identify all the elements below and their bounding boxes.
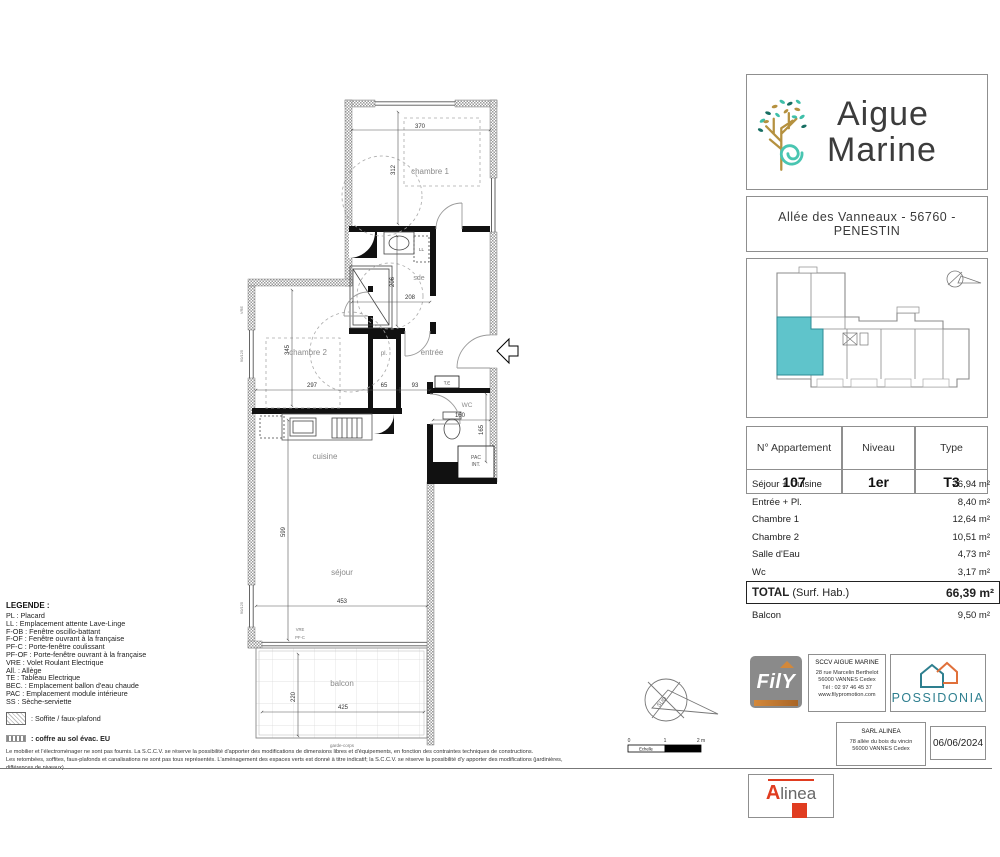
- area-label: Salle d'Eau: [752, 549, 800, 560]
- dim-balcon-w: 425: [338, 705, 349, 711]
- total-value: 66,39 m²: [946, 586, 994, 600]
- spiral-mark: [781, 146, 802, 164]
- room-label-chambre2: chambre 2: [289, 348, 327, 357]
- dim-chambre1-w: 370: [415, 124, 426, 130]
- siteplan-box: [746, 258, 988, 418]
- dim-wc-h: 165: [479, 424, 485, 435]
- plan-sheet: 370 312 206 208 345 297 65 93 160 165 59…: [0, 0, 1000, 857]
- label-vre-left: VRE: [239, 306, 244, 315]
- alinea-square: [792, 803, 807, 818]
- area-label: Entrée + Pl.: [752, 497, 802, 508]
- alinea-address-1: 78 allée du bois du vincin: [837, 739, 925, 747]
- label-te: T.E: [444, 381, 451, 386]
- total-label: TOTAL (Surf. Hab.): [752, 587, 849, 599]
- apt-col1-header: N° Appartement: [746, 426, 842, 470]
- brand-logo-box: Aigue Marine: [746, 74, 988, 190]
- area-row: Chambre 2 10,51 m²: [748, 529, 994, 546]
- scale-tick-1: 1: [664, 738, 667, 744]
- developer-phone: Tél : 02 97 46 45 37: [809, 685, 885, 693]
- area-label: Séjour + Cuisine: [752, 479, 822, 490]
- developer-address-2: 56000 VANNES Cedex: [809, 677, 885, 685]
- dim-wc-w: 160: [455, 413, 466, 419]
- legend-coffre-label: : coffre au sol évac. EU: [31, 734, 110, 743]
- label-vre-bottom: VRE: [296, 627, 305, 632]
- balcony: [256, 648, 427, 738]
- dim-sde-w: 208: [405, 295, 416, 301]
- area-row: Séjour + Cuisine 26,94 m²: [748, 476, 994, 493]
- dim-chambre1-h: 312: [391, 164, 397, 175]
- scale-label: Echelle: [639, 747, 653, 752]
- area-row: Entrée + Pl. 8,40 m²: [748, 494, 994, 511]
- dim-chambre2-w: 297: [307, 383, 318, 389]
- page-frame-bottom: [0, 768, 992, 769]
- dim-hall-w: 93: [412, 383, 419, 389]
- possidonia-name: POSSIDONIA: [891, 691, 985, 705]
- dim-sejour-h: 599: [281, 526, 287, 537]
- possidonia-logo-box: POSSIDONIA: [890, 654, 986, 712]
- apt-col3-header: Type: [915, 426, 988, 470]
- alinea-logo-text: Alinea: [749, 782, 833, 805]
- brand-name-line1: Aigue: [837, 96, 937, 132]
- area-label: Wc: [752, 567, 766, 578]
- legend: LEGENDE : PL : Placard LL : Emplacement …: [6, 601, 242, 743]
- apartment-table: N° Appartement Niveau Type 107 1er T3: [746, 426, 988, 470]
- area-value: 12,64 m²: [953, 514, 991, 525]
- room-label-entree: entrée: [421, 348, 444, 357]
- developer-company: SCCV AIGUE MARINE: [809, 659, 885, 667]
- alinea-rule: [768, 779, 814, 781]
- dim-balcon-h: 220: [291, 691, 297, 702]
- compass-icon: SUD: [645, 679, 718, 721]
- scale-tick-0: 0: [628, 738, 631, 744]
- legend-title: LEGENDE :: [6, 601, 242, 610]
- alinea-logo-box: Alinea: [748, 774, 834, 818]
- coffre-swatch: [6, 735, 26, 742]
- room-label-placard: pl.: [381, 350, 388, 357]
- disclaimer-line-1: Le mobilier et l'électroménager ne sont …: [6, 748, 566, 756]
- developer-info: SCCV AIGUE MARINE 28 rue Marcelin Berthe…: [808, 654, 886, 712]
- scale-tick-2: 2 m: [697, 738, 705, 744]
- label-ll: LL: [419, 247, 425, 252]
- label-pac-2: INT.: [472, 462, 481, 468]
- area-value: 26,94 m²: [953, 479, 991, 490]
- balcony-row: Balcon 9,50 m²: [748, 607, 994, 624]
- room-label-balcon: balcon: [330, 679, 354, 688]
- compass-label: SUD: [656, 696, 668, 709]
- project-address: Allée des Vanneaux - 56760 - PENESTIN: [747, 210, 987, 238]
- area-value: 3,17 m²: [958, 567, 990, 578]
- brand-name: Aigue Marine: [827, 96, 937, 168]
- label-pac-1: PAC: [471, 455, 481, 461]
- balcony-label: Balcon: [752, 610, 781, 621]
- room-label-sde: sde: [413, 275, 424, 282]
- disclaimer-line-2: Les retombées, soffites, faux-plafonds e…: [6, 756, 566, 772]
- date-box: 06/06/2024: [930, 726, 986, 760]
- fily-logo: FilY: [750, 656, 802, 708]
- dim-sejour-w: 453: [337, 599, 348, 605]
- dim-placard-w: 65: [381, 383, 388, 389]
- siteplan-compass-icon: [947, 271, 981, 287]
- developer-address-1: 28 rue Marcelin Berthelot: [809, 670, 885, 678]
- area-label: Chambre 2: [752, 532, 799, 543]
- address-box: Allée des Vanneaux - 56760 - PENESTIN: [746, 196, 988, 252]
- developer-website[interactable]: www.filypromotion.com: [809, 692, 885, 700]
- fixtures: [258, 232, 494, 686]
- brand-tree-icon: [753, 90, 819, 174]
- room-label-sejour: séjour: [331, 568, 353, 577]
- alinea-company: SARL ALINEA: [837, 728, 925, 736]
- fily-banner: [754, 700, 798, 706]
- room-label-wc: WC: [462, 402, 473, 409]
- room-label-cuisine: cuisine: [313, 452, 338, 461]
- balcony-value: 9,50 m²: [958, 610, 990, 621]
- area-row: Salle d'Eau 4,73 m²: [748, 546, 994, 563]
- plan-date: 06/06/2024: [933, 738, 983, 749]
- legend-item: SS : Sèche-serviette: [6, 698, 242, 706]
- scale-bar: 0 1 2 m Echelle: [628, 738, 706, 752]
- area-value: 10,51 m²: [953, 532, 991, 543]
- area-row: Wc 3,17 m²: [748, 564, 994, 581]
- apt-col2-header: Niveau: [842, 426, 915, 470]
- label-window-size-1: 90/125: [239, 349, 244, 362]
- area-value: 4,73 m²: [958, 549, 990, 560]
- fily-roof-icon: [780, 661, 794, 668]
- area-value: 8,40 m²: [958, 497, 990, 508]
- alinea-info: SARL ALINEA 78 allée du bois du vincin 5…: [836, 722, 926, 766]
- soffite-swatch: [6, 712, 26, 725]
- alinea-address-2: 56000 VANNES Cedex: [837, 746, 925, 754]
- brand-name-line2: Marine: [827, 132, 937, 168]
- possidonia-houses-icon: [891, 659, 985, 691]
- area-label: Chambre 1: [752, 514, 799, 525]
- legend-soffite-label: : Soffite / faux-plafond: [31, 714, 101, 723]
- fily-logo-text: FilY: [757, 671, 796, 694]
- area-row: Chambre 1 12,64 m²: [748, 511, 994, 528]
- label-pfc-bottom: PF-C: [295, 635, 305, 640]
- entrance-arrow: [497, 339, 518, 363]
- siteplan-drawing: [747, 259, 987, 417]
- total-row: TOTAL (Surf. Hab.) 66,39 m²: [746, 581, 1000, 604]
- dim-sde-h: 206: [390, 276, 396, 287]
- room-label-chambre1: chambre 1: [411, 167, 449, 176]
